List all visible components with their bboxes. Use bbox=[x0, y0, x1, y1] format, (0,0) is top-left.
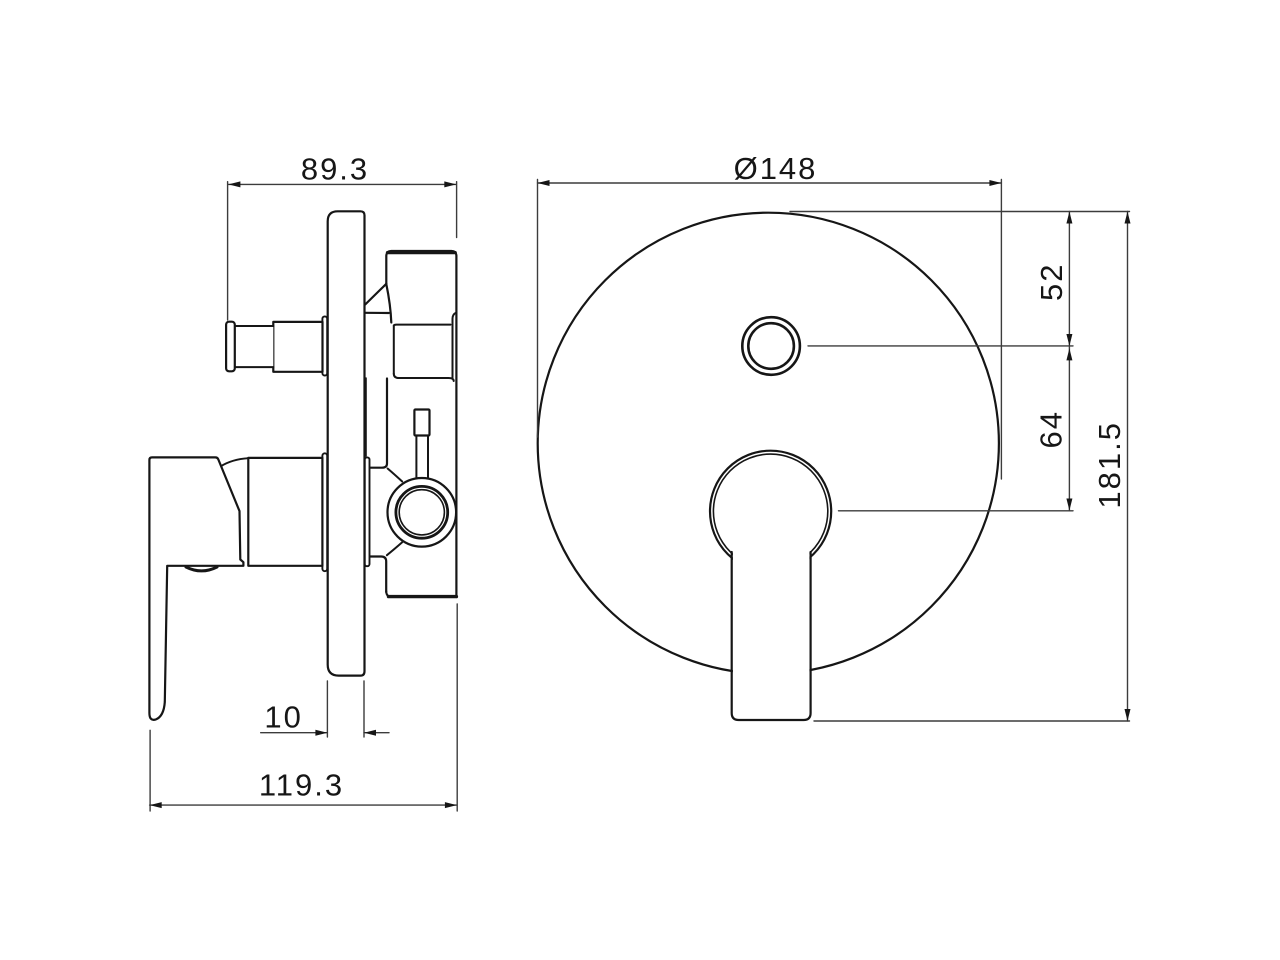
svg-text:89.3: 89.3 bbox=[301, 152, 369, 187]
svg-text:Ø148: Ø148 bbox=[734, 151, 818, 186]
svg-text:64: 64 bbox=[1034, 410, 1069, 448]
svg-text:10: 10 bbox=[264, 700, 302, 735]
svg-text:181.5: 181.5 bbox=[1092, 421, 1127, 509]
svg-text:119.3: 119.3 bbox=[259, 768, 344, 803]
svg-text:52: 52 bbox=[1034, 262, 1069, 300]
